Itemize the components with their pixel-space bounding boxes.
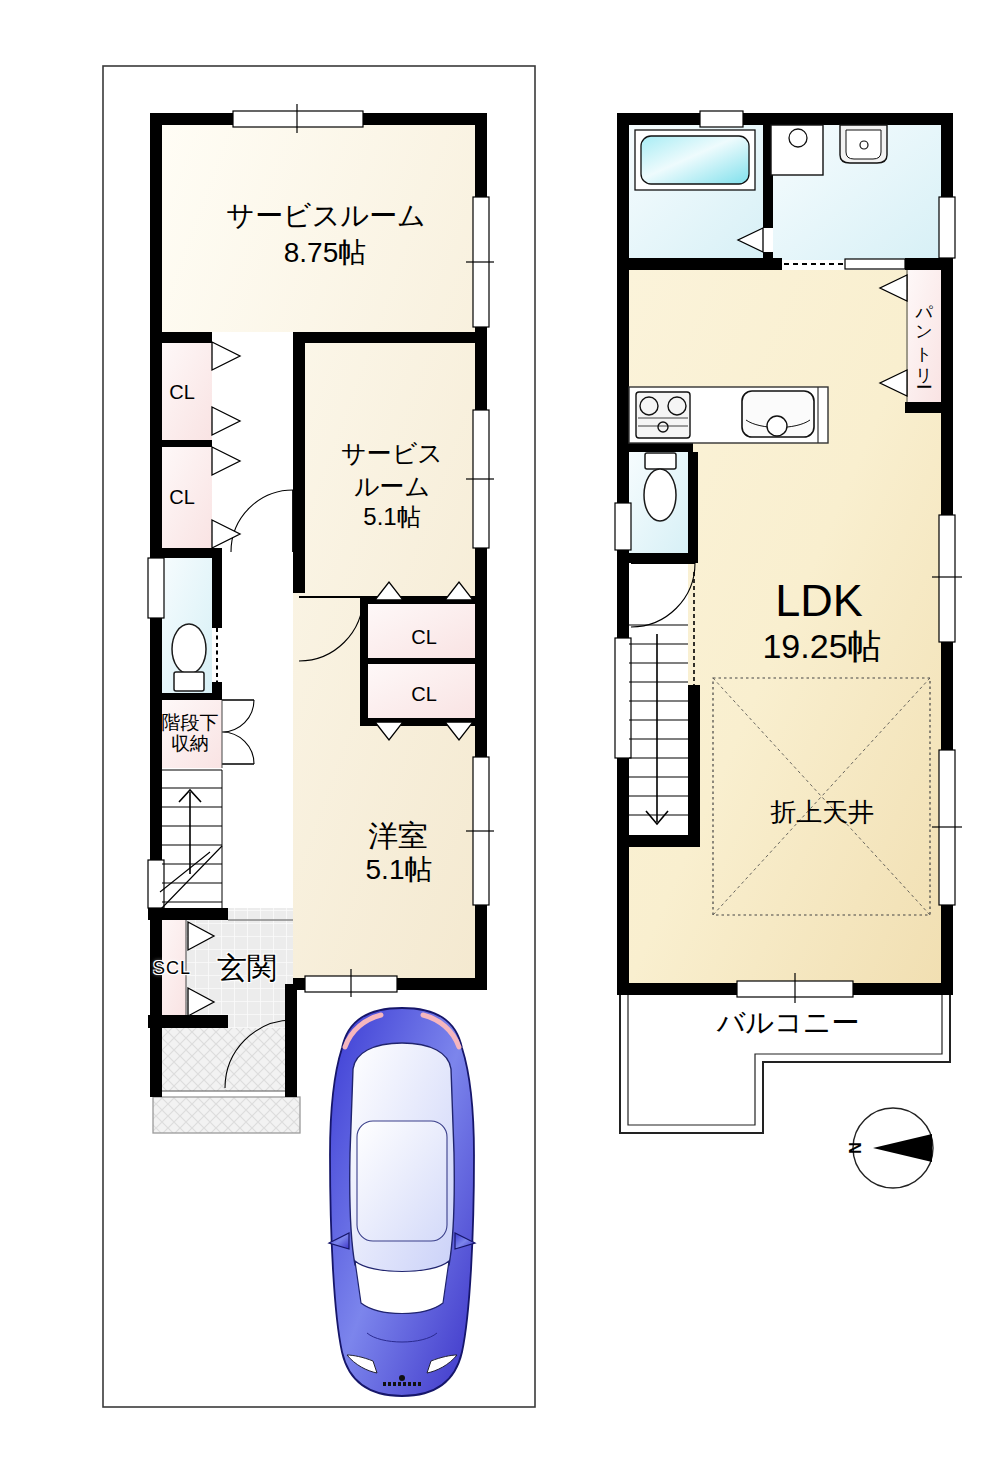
vanity-sink-icon [840,125,887,163]
balcony-label: バルコニー [717,1009,860,1037]
western-room-label: 洋室 [368,821,428,851]
coffered-ceiling-label: 折上天井 [770,799,874,825]
service-room-small-label-2: ルーム [354,474,430,499]
washer-pan-icon [771,125,823,175]
compass-north-label: N [848,1142,864,1154]
bathtub-icon [635,130,755,190]
western-room-area: 5.1帖 [366,856,433,884]
floorplan-canvas: サービスルーム 8.75帖 CL CL サービス ルーム 5.1帖 CL CL … [0,0,1000,1469]
under-stair-storage-label-2: 収納 [171,734,209,753]
service-room-large-label: サービスルーム [226,202,425,230]
service-room-large-area: 8.75帖 [284,239,367,267]
toilet-icon-floor2 [644,453,676,521]
compass-icon [853,1108,933,1188]
pantry-label: パントリー [916,292,933,379]
under-stair-storage-label-1: 階段下 [162,713,219,732]
service-room-small-area: 5.1帖 [363,505,420,529]
closet-label: CL [169,487,195,507]
closet-label: CL [411,627,437,647]
shoe-closet-label: SCL [153,959,191,977]
kitchen-counter-icon [629,387,828,443]
ldk-label: LDK [775,578,863,623]
car-icon [329,1008,475,1396]
service-room-small-label-1: サービス [341,441,443,466]
entrance-label: 玄関 [217,953,277,983]
closet-label: CL [169,382,195,402]
toilet-icon-floor1 [172,624,206,691]
ldk-area: 19.25帖 [762,629,881,663]
floorplan-drawing [0,0,1000,1469]
closet-label: CL [411,684,437,704]
